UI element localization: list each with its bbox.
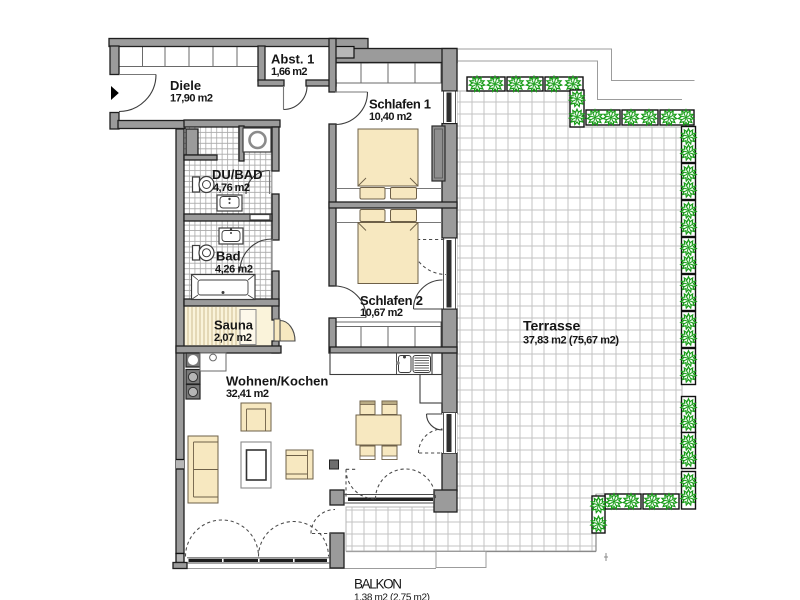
- svg-text:37,83 m2 (75,67 m2): 37,83 m2 (75,67 m2): [523, 335, 619, 347]
- svg-text:10,40 m2: 10,40 m2: [369, 111, 412, 123]
- svg-text:Abst. 1: Abst. 1: [271, 52, 314, 67]
- svg-text:BALKON: BALKON: [354, 577, 402, 592]
- svg-text:Schlafen 2: Schlafen 2: [360, 293, 423, 308]
- svg-text:10,67 m2: 10,67 m2: [360, 307, 403, 319]
- svg-text:Diele: Diele: [170, 78, 201, 93]
- svg-text:Wohnen/Kochen: Wohnen/Kochen: [226, 374, 328, 389]
- svg-text:DU/BAD: DU/BAD: [212, 167, 263, 182]
- svg-text:4,26 m2: 4,26 m2: [215, 264, 253, 276]
- svg-text:1,38 m2 (2,75 m2): 1,38 m2 (2,75 m2): [354, 593, 430, 600]
- svg-text:1,66 m2: 1,66 m2: [271, 66, 308, 78]
- svg-text:17,90 m2: 17,90 m2: [170, 93, 213, 105]
- svg-text:Sauna: Sauna: [214, 318, 254, 333]
- svg-text:Terrasse: Terrasse: [523, 318, 581, 334]
- svg-text:Schlafen 1: Schlafen 1: [369, 97, 431, 112]
- svg-text:4,76 m2: 4,76 m2: [213, 182, 250, 194]
- svg-text:Bad: Bad: [216, 249, 241, 264]
- svg-text:32,41 m2: 32,41 m2: [226, 388, 269, 400]
- svg-text:2,07 m2: 2,07 m2: [214, 332, 252, 344]
